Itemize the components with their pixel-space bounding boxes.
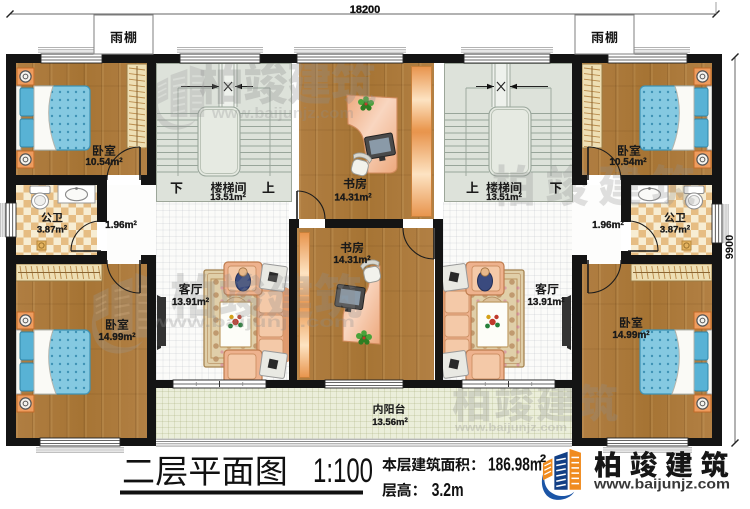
svg-text:3.2m: 3.2m (432, 479, 464, 500)
svg-text:www.baijunjz.com: www.baijunjz.com (149, 314, 355, 331)
svg-text:13.91m2: 13.91m2 (172, 297, 210, 308)
svg-text:1.96m2: 1.96m2 (105, 220, 137, 231)
svg-text:3.87m2: 3.87m2 (660, 225, 691, 236)
svg-text:13.56m2: 13.56m2 (372, 417, 408, 428)
svg-text:14.99m2: 14.99m2 (612, 330, 650, 341)
svg-text:www.baijunjz.com: www.baijunjz.com (211, 105, 354, 122)
svg-text:14.31m2: 14.31m2 (333, 255, 371, 266)
svg-text:www.baijunjz.com: www.baijunjz.com (454, 422, 567, 434)
svg-text:14.31m2: 14.31m2 (334, 193, 372, 204)
svg-text:www.baijunjz.com: www.baijunjz.com (593, 476, 730, 492)
svg-text:13.51m2: 13.51m2 (210, 192, 246, 203)
svg-text:10.54m2: 10.54m2 (609, 157, 647, 168)
svg-text:1.96m2: 1.96m2 (592, 220, 624, 231)
svg-text:9900: 9900 (724, 235, 736, 259)
svg-text:3.87m2: 3.87m2 (37, 225, 68, 236)
svg-text:1:100: 1:100 (313, 452, 373, 490)
svg-text:18200: 18200 (350, 4, 381, 16)
svg-text:14.99m2: 14.99m2 (98, 332, 136, 343)
svg-text:186.98m: 186.98m (488, 454, 542, 475)
svg-text:13.51m2: 13.51m2 (486, 192, 522, 203)
svg-text:13.91m2: 13.91m2 (527, 297, 565, 308)
svg-text:10.54m2: 10.54m2 (85, 157, 123, 168)
